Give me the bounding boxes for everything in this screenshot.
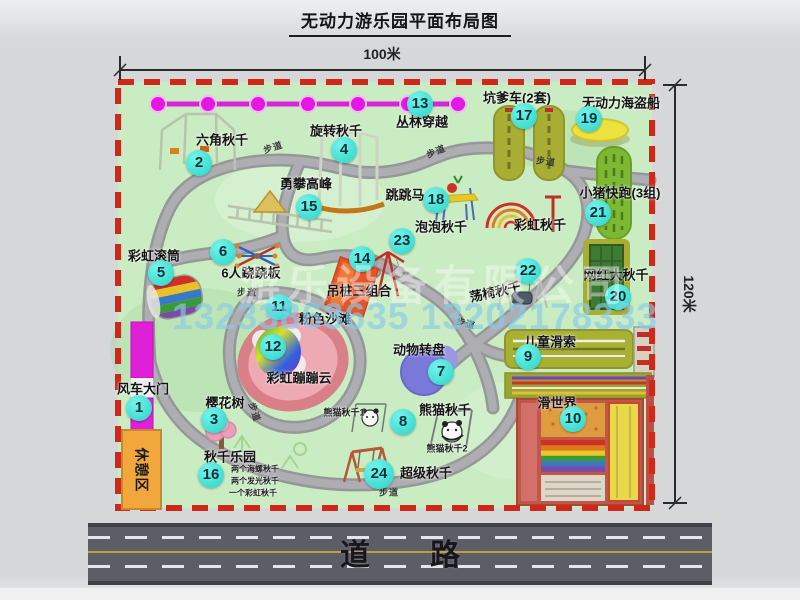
dimension-label-width: 100米	[363, 44, 400, 64]
page-title: 无动力游乐园平面布局图	[289, 7, 511, 37]
pirate-ship-icon	[570, 119, 630, 147]
windmill-gate-icon	[131, 322, 153, 432]
dimension-label-height: 120米	[679, 275, 699, 312]
rest-area-label: 休憩区	[132, 447, 152, 492]
rest-area-box: 休憩区	[121, 429, 162, 510]
road: 道 路	[88, 523, 712, 585]
slide-world-icon	[505, 373, 654, 505]
road-label: 道 路	[340, 530, 460, 574]
layout-plan-image: 无动力游乐园平面布局图 100米 120米 休憩区 风车大门1六角秋千2樱花树3…	[0, 0, 800, 600]
bottom-margin-strip	[0, 588, 800, 600]
piggy-run-icon	[597, 147, 631, 239]
net-swing-icon	[583, 239, 630, 315]
